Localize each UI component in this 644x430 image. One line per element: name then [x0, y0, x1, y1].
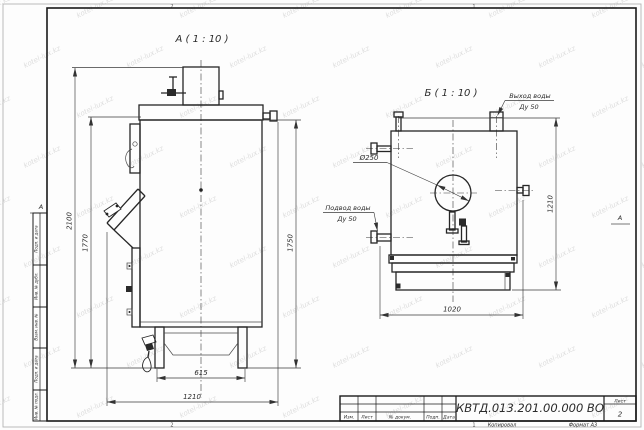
watermark-text: kotel-lux.kz — [281, 294, 321, 320]
drawing-canvas: kotel-lux.kzkotel-lux.kzkotel-lux.kzkote… — [0, 0, 644, 430]
watermark-text: kotel-lux.kz — [434, 144, 474, 170]
outlet-label-line2: Ду 50 — [518, 103, 538, 111]
flue-diameter-label: Ø250 — [359, 154, 379, 162]
watermark-text: kotel-lux.kz — [178, 94, 218, 120]
margin-col-3: Подп. и дата — [34, 355, 39, 383]
watermark-text: kotel-lux.kz — [281, 94, 321, 120]
watermark-text: kotel-lux.kz — [22, 144, 62, 170]
drain-valve — [459, 219, 466, 226]
watermark-text: kotel-lux.kz — [22, 244, 62, 270]
watermark-text: kotel-lux.kz — [331, 344, 371, 370]
watermark-text: kotel-lux.kz — [0, 0, 12, 20]
watermark-text: kotel-lux.kz — [384, 194, 424, 220]
watermark-text: kotel-lux.kz — [0, 94, 12, 120]
watermark-text: kotel-lux.kz — [537, 344, 577, 370]
margin-col-0: Подп. и дата — [34, 225, 39, 253]
outlet-label-line1: Выход воды — [509, 92, 550, 100]
watermark-text: kotel-lux.kz — [537, 244, 577, 270]
dim-1210-b: 1210 — [547, 195, 555, 213]
zone-top-left: 2 — [170, 4, 173, 10]
ash-handle — [142, 335, 156, 345]
zone-letter-left: А — [38, 203, 43, 211]
sheet-number: 2 — [618, 411, 623, 419]
zone-top-right: 1 — [472, 4, 475, 10]
watermark-text: kotel-lux.kz — [590, 94, 630, 120]
watermark-text: kotel-lux.kz — [0, 294, 12, 320]
watermark-text: kotel-lux.kz — [75, 94, 115, 120]
watermark-text: kotel-lux.kz — [281, 194, 321, 220]
watermark-text: kotel-lux.kz — [590, 194, 630, 220]
zone-letter-right: А — [617, 214, 622, 222]
margin-col-1: Инв. № дубл. — [34, 272, 39, 299]
sheet-label: Лист — [613, 399, 626, 405]
zone-bottom-left: 2 — [170, 423, 173, 429]
watermark-text: kotel-lux.kz — [537, 44, 577, 70]
view-b-title: Б ( 1 : 10 ) — [424, 88, 477, 99]
watermark-text: kotel-lux.kz — [125, 244, 165, 270]
watermark-text: kotel-lux.kz — [178, 294, 218, 320]
damper-handle — [167, 89, 176, 96]
watermark-text: kotel-lux.kz — [75, 294, 115, 320]
watermark-text: kotel-lux.kz — [281, 394, 321, 420]
dim-1210-a: 1210 — [183, 393, 201, 401]
watermark-text: kotel-lux.kz — [487, 294, 527, 320]
watermark-text: kotel-lux.kz — [590, 0, 630, 20]
watermark-text: kotel-lux.kz — [434, 244, 474, 270]
watermark-text: kotel-lux.kz — [487, 194, 527, 220]
watermark-text: kotel-lux.kz — [384, 94, 424, 120]
watermark-text: kotel-lux.kz — [434, 344, 474, 370]
center-mark — [199, 188, 203, 192]
dim-1020: 1020 — [443, 306, 461, 314]
watermark-text: kotel-lux.kz — [487, 0, 527, 20]
format-label: Формат А3 — [569, 423, 597, 429]
designation-text: КВТД.013.201.00.000 ВО — [456, 401, 604, 415]
copied-label: Копировал — [488, 423, 517, 429]
watermark-text: kotel-lux.kz — [125, 144, 165, 170]
dim-1750: 1750 — [287, 234, 295, 252]
watermark-text: kotel-lux.kz — [384, 294, 424, 320]
watermark-text: kotel-lux.kz — [75, 0, 115, 20]
margin-col-4: Инв. № подл. — [34, 392, 39, 420]
watermark-text: kotel-lux.kz — [75, 394, 115, 420]
footer-notes: Копировал Формат А3 — [488, 423, 598, 429]
inlet-label-line2: Ду 50 — [336, 215, 356, 223]
watermark-text: kotel-lux.kz — [0, 194, 12, 220]
watermark-text: kotel-lux.kz — [537, 144, 577, 170]
watermark-text: kotel-lux.kz — [178, 0, 218, 20]
rev-col-podp: Подп. — [426, 415, 440, 421]
watermark-text: kotel-lux.kz — [384, 0, 424, 20]
rev-col-izm: Изм. — [344, 415, 355, 421]
rev-col-ndocum: № докум. — [388, 415, 411, 421]
watermark-text: kotel-lux.kz — [0, 394, 12, 420]
watermark-text: kotel-lux.kz — [228, 44, 268, 70]
watermark-text: kotel-lux.kz — [281, 0, 321, 20]
dim-1770: 1770 — [82, 234, 90, 252]
dim-615: 615 — [194, 369, 208, 377]
zone-bottom-right: 1 — [472, 423, 475, 429]
rev-col-list: Лист — [360, 415, 373, 421]
margin-stamp: Подп. и дата Инв. № дубл. Взам. инв. № П… — [33, 213, 47, 421]
drawing-sheet: kotel-lux.kzkotel-lux.kzkotel-lux.kzkote… — [0, 0, 644, 430]
watermark-text: kotel-lux.kz — [434, 44, 474, 70]
watermark-text: kotel-lux.kz — [331, 44, 371, 70]
view-a-title: А ( 1 : 10 ) — [175, 34, 229, 45]
dim-2100: 2100 — [66, 212, 74, 230]
margin-col-2: Взам. инв. № — [34, 313, 39, 340]
inlet-label-line1: Подвод воды — [325, 204, 370, 212]
view-b-contours — [371, 112, 529, 290]
watermark-text: kotel-lux.kz — [178, 194, 218, 220]
watermark-text: kotel-lux.kz — [22, 44, 62, 70]
watermark-text: kotel-lux.kz — [590, 294, 630, 320]
watermark-text: kotel-lux.kz — [331, 244, 371, 270]
rev-col-data: Дата — [442, 415, 455, 421]
watermark-text: kotel-lux.kz — [125, 44, 165, 70]
view-b: Б ( 1 : 10 ) — [323, 88, 561, 319]
